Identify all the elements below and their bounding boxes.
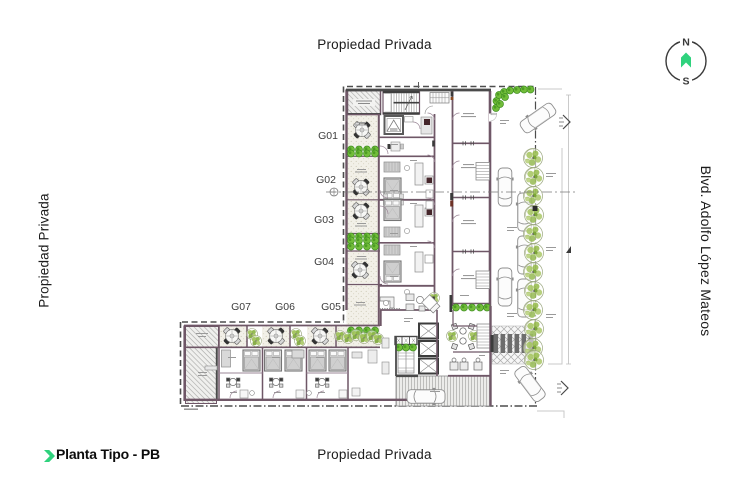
svg-text:S: S bbox=[682, 76, 689, 88]
